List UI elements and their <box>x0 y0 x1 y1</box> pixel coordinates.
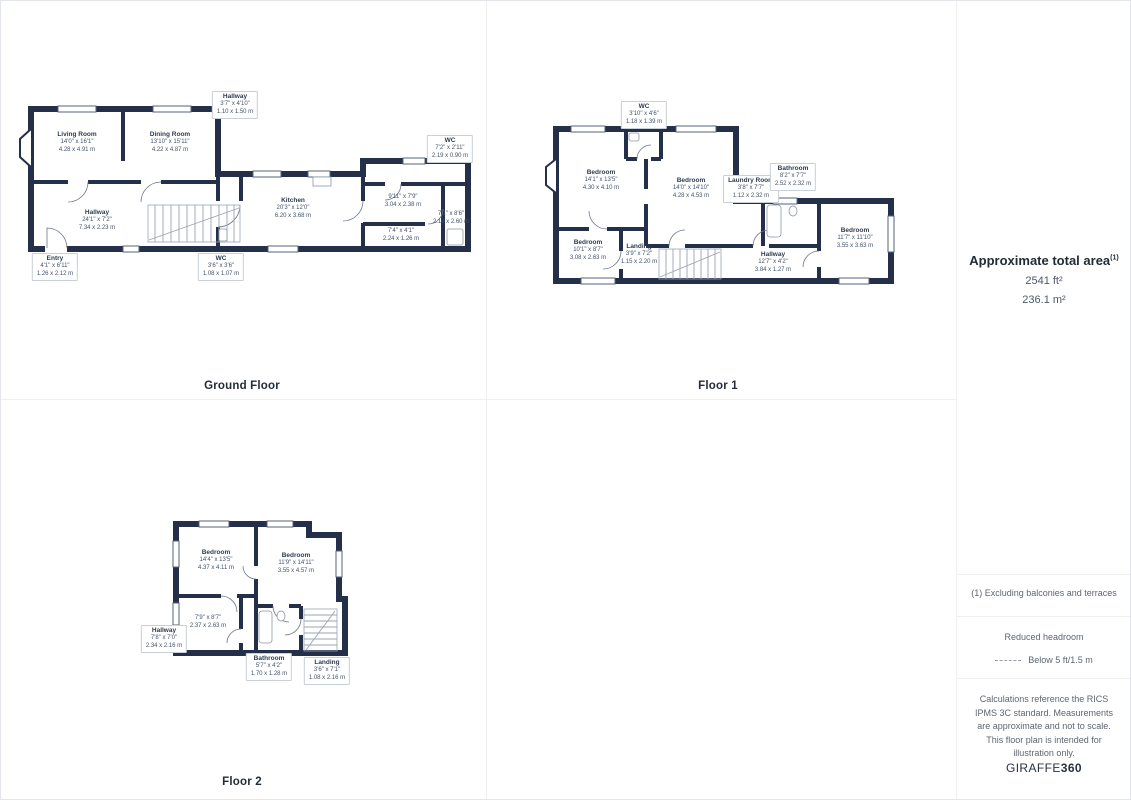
room-dimensions: 20'3" x 12'0" <box>275 205 311 213</box>
room-dimensions: 14'1" x 13'5" <box>583 177 619 185</box>
room-dimensions: 4.22 x 4.87 m <box>150 147 190 155</box>
total-area-title: Approximate total area(1) <box>957 253 1131 268</box>
room-dimensions: 3'7" x 4'10" <box>217 101 253 109</box>
room-label-hallway: Hallway12'7" x 4'2"3.84 x 1.27 m <box>755 251 791 275</box>
room-label-bedroom: Bedroom14'1" x 13'5"4.30 x 4.10 m <box>583 169 619 193</box>
disclaimer-text: Calculations reference the RICS IPMS 3C … <box>971 693 1117 761</box>
room-dimensions: 5'7" x 4'2" <box>251 663 287 671</box>
giraffe360-logo-left: GIRAFFE <box>1006 761 1061 775</box>
room-dimensions: 14'0" x 16'1" <box>57 139 96 147</box>
room-name: Bedroom <box>198 549 234 557</box>
reduced-headroom-title: Reduced headroom <box>965 631 1123 645</box>
room-label-landing: Landing3'6" x 7'1"1.08 x 2.16 m <box>304 657 350 685</box>
reduced-headroom-block: Reduced headroom Below 5 ft/1.5 m <box>965 631 1123 667</box>
room-label-bedroom: Bedroom10'1" x 8'7"3.08 x 2.63 m <box>570 239 606 263</box>
room-dimensions: 13'10" x 15'11" <box>150 139 190 147</box>
room-name: Laundry Room <box>728 177 774 185</box>
room-name: WC <box>626 103 662 111</box>
floor-2-labels: Bedroom14'4" x 13'5"4.37 x 4.11 mBedroom… <box>141 511 381 696</box>
total-area-block: Approximate total area(1) 2541 ft² 236.1… <box>957 253 1131 306</box>
room-dimensions: 4.30 x 4.10 m <box>583 185 619 193</box>
horizontal-divider <box>1 399 956 400</box>
room-dimensions: 7'8" x 7'0" <box>146 635 182 643</box>
room-name: Entry <box>37 255 73 263</box>
room-label-room: 7'4" x 4'1"2.24 x 1.26 m <box>383 228 419 244</box>
room-dimensions: 1.15 x 2.20 m <box>621 259 657 267</box>
room-label-wc: WC3'6" x 3'6"1.08 x 1.07 m <box>198 253 244 281</box>
room-dimensions: 14'0" x 14'10" <box>673 185 709 193</box>
total-area-m: 236.1 m² <box>957 294 1131 306</box>
room-name: Bedroom <box>837 227 873 235</box>
room-name: Hallway <box>217 93 253 101</box>
room-dimensions: 2.37 x 2.63 m <box>190 623 226 631</box>
ground-floor-plan: Living Room14'0" x 16'1"4.28 x 4.91 mDin… <box>13 89 473 284</box>
room-dimensions: 4.28 x 4.91 m <box>57 147 96 155</box>
reduced-headroom-value: Below 5 ft/1.5 m <box>1028 655 1093 665</box>
room-dimensions: 9'11" x 7'9" <box>385 194 421 202</box>
room-dimensions: 3'9" x 7'2" <box>621 251 657 259</box>
room-dimensions: 2.16 x 2.60 m <box>433 219 469 227</box>
room-name: Landing <box>309 659 345 667</box>
room-dimensions: 7'4" x 4'1" <box>383 228 419 236</box>
room-name: WC <box>432 137 468 145</box>
room-name: Living Room <box>57 131 96 139</box>
room-dimensions: 1.08 x 2.16 m <box>309 675 345 683</box>
room-dimensions: 1.18 x 1.39 m <box>626 119 662 127</box>
giraffe360-logo-right: 360 <box>1061 761 1082 775</box>
floor-1-title: Floor 1 <box>698 380 738 392</box>
room-name: Bathroom <box>775 165 811 173</box>
total-area-ft: 2541 ft² <box>957 275 1131 287</box>
room-dimensions: 1.70 x 1.28 m <box>251 671 287 679</box>
room-name: Bedroom <box>583 169 619 177</box>
room-dimensions: 14'4" x 13'5" <box>198 557 234 565</box>
room-dimensions: 4.37 x 4.11 m <box>198 565 234 573</box>
room-label-hallway: Hallway24'1" x 7'2"7.34 x 2.23 m <box>79 209 115 233</box>
room-dimensions: 1.10 x 1.50 m <box>217 109 253 117</box>
total-area-footnote-marker: (1) <box>1110 255 1119 262</box>
room-label-bedroom: Bedroom11'7" x 11'10"3.55 x 3.63 m <box>837 227 873 251</box>
room-label-bedroom: Bedroom11'9" x 14'11"3.55 x 4.57 m <box>278 552 314 576</box>
info-sidebar: Approximate total area(1) 2541 ft² 236.1… <box>957 1 1131 799</box>
room-dimensions: 3'10" x 4'6" <box>626 111 662 119</box>
room-label-room: 7'9" x 8'7"2.37 x 2.63 m <box>190 615 226 631</box>
vertical-divider <box>486 1 487 799</box>
room-label-room: 9'11" x 7'9"3.04 x 2.38 m <box>385 194 421 210</box>
room-label-room: 7'1" x 8'6"2.16 x 2.60 m <box>433 211 469 227</box>
room-label-landing: Landing3'9" x 7'2"1.15 x 2.20 m <box>621 243 657 267</box>
room-dimensions: 24'1" x 7'2" <box>79 217 115 225</box>
room-name: Bedroom <box>278 552 314 560</box>
room-name: Hallway <box>755 251 791 259</box>
room-label-bathroom: Bathroom5'7" x 4'2"1.70 x 1.28 m <box>246 653 292 681</box>
room-label-entry: Entry4'1" x 6'11"1.26 x 2.12 m <box>32 253 78 281</box>
room-dimensions: 1.08 x 1.07 m <box>203 271 239 279</box>
room-dimensions: 4'1" x 6'11" <box>37 263 73 271</box>
room-dimensions: 2.19 x 0.90 m <box>432 153 468 161</box>
room-dimensions: 1.12 x 2.32 m <box>728 193 774 201</box>
room-dimensions: 2.34 x 2.16 m <box>146 643 182 651</box>
room-label-bathroom: Bathroom8'2" x 7'7"2.52 x 2.32 m <box>770 163 816 191</box>
balconies-note: (1) Excluding balconies and terraces <box>965 587 1123 601</box>
floor-1-labels: Bedroom14'1" x 13'5"4.30 x 4.10 mBedroom… <box>541 101 901 296</box>
room-name: Dining Room <box>150 131 190 139</box>
room-dimensions: 12'7" x 4'2" <box>755 259 791 267</box>
sidebar-section-divider-3 <box>957 678 1131 679</box>
room-dimensions: 7'2" x 2'11" <box>432 145 468 153</box>
room-label-kitchen: Kitchen20'3" x 12'0"6.20 x 3.68 m <box>275 197 311 221</box>
room-label-wc: WC7'2" x 2'11"2.19 x 0.90 m <box>427 135 473 163</box>
room-dimensions: 3.04 x 2.38 m <box>385 202 421 210</box>
room-dimensions: 3'6" x 7'1" <box>309 667 345 675</box>
room-label-bedroom: Bedroom14'4" x 13'5"4.37 x 4.11 m <box>198 549 234 573</box>
ground-floor-labels: Living Room14'0" x 16'1"4.28 x 4.91 mDin… <box>13 89 473 284</box>
room-dimensions: 10'1" x 8'7" <box>570 247 606 255</box>
room-dimensions: 3.08 x 2.63 m <box>570 255 606 263</box>
sidebar-section-divider-2 <box>957 616 1131 617</box>
room-label-hallway: Hallway7'8" x 7'0"2.34 x 2.16 m <box>141 625 187 653</box>
room-name: Landing <box>621 243 657 251</box>
floor-2-title: Floor 2 <box>222 776 262 788</box>
room-name: Bedroom <box>570 239 606 247</box>
room-name: Bedroom <box>673 177 709 185</box>
floorplan-sheet: Living Room14'0" x 16'1"4.28 x 4.91 mDin… <box>0 0 1131 800</box>
room-dimensions: 7'1" x 8'6" <box>433 211 469 219</box>
room-dimensions: 3'8" x 7'7" <box>728 185 774 193</box>
sidebar-section-divider-1 <box>957 574 1131 575</box>
floor-1-plan: Bedroom14'1" x 13'5"4.30 x 4.10 mBedroom… <box>541 101 901 296</box>
room-dimensions: 4.28 x 4.53 m <box>673 193 709 201</box>
room-dimensions: 11'7" x 11'10" <box>837 235 873 243</box>
room-dimensions: 1.26 x 2.12 m <box>37 271 73 279</box>
room-dimensions: 6.20 x 3.68 m <box>275 213 311 221</box>
room-dimensions: 2.52 x 2.32 m <box>775 181 811 189</box>
room-label-living-room: Living Room14'0" x 16'1"4.28 x 4.91 m <box>57 131 96 155</box>
room-dimensions: 3'6" x 3'6" <box>203 263 239 271</box>
room-name: Kitchen <box>275 197 311 205</box>
room-label-hallway: Hallway3'7" x 4'10"1.10 x 1.50 m <box>212 91 258 119</box>
room-label-bedroom: Bedroom14'0" x 14'10"4.28 x 4.53 m <box>673 177 709 201</box>
room-dimensions: 7'9" x 8'7" <box>190 615 226 623</box>
room-label-wc: WC3'10" x 4'6"1.18 x 1.39 m <box>621 101 667 129</box>
room-dimensions: 11'9" x 14'11" <box>278 560 314 568</box>
giraffe360-logo: GIRAFFE360 <box>957 761 1131 775</box>
room-dimensions: 7.34 x 2.23 m <box>79 225 115 233</box>
room-name: Hallway <box>79 209 115 217</box>
floor-2-plan: Bedroom14'4" x 13'5"4.37 x 4.11 mBedroom… <box>141 511 381 696</box>
room-name: WC <box>203 255 239 263</box>
room-dimensions: 3.55 x 4.57 m <box>278 568 314 576</box>
room-name: Hallway <box>146 627 182 635</box>
dashed-line-legend <box>995 660 1021 661</box>
room-dimensions: 3.55 x 3.63 m <box>837 243 873 251</box>
room-dimensions: 3.84 x 1.27 m <box>755 267 791 275</box>
total-area-title-text: Approximate total area <box>969 253 1110 268</box>
room-label-dining-room: Dining Room13'10" x 15'11"4.22 x 4.87 m <box>150 131 190 155</box>
ground-floor-title: Ground Floor <box>204 380 280 392</box>
room-dimensions: 8'2" x 7'7" <box>775 173 811 181</box>
room-dimensions: 2.24 x 1.26 m <box>383 236 419 244</box>
reduced-headroom-row: Below 5 ft/1.5 m <box>965 654 1123 668</box>
room-name: Bathroom <box>251 655 287 663</box>
